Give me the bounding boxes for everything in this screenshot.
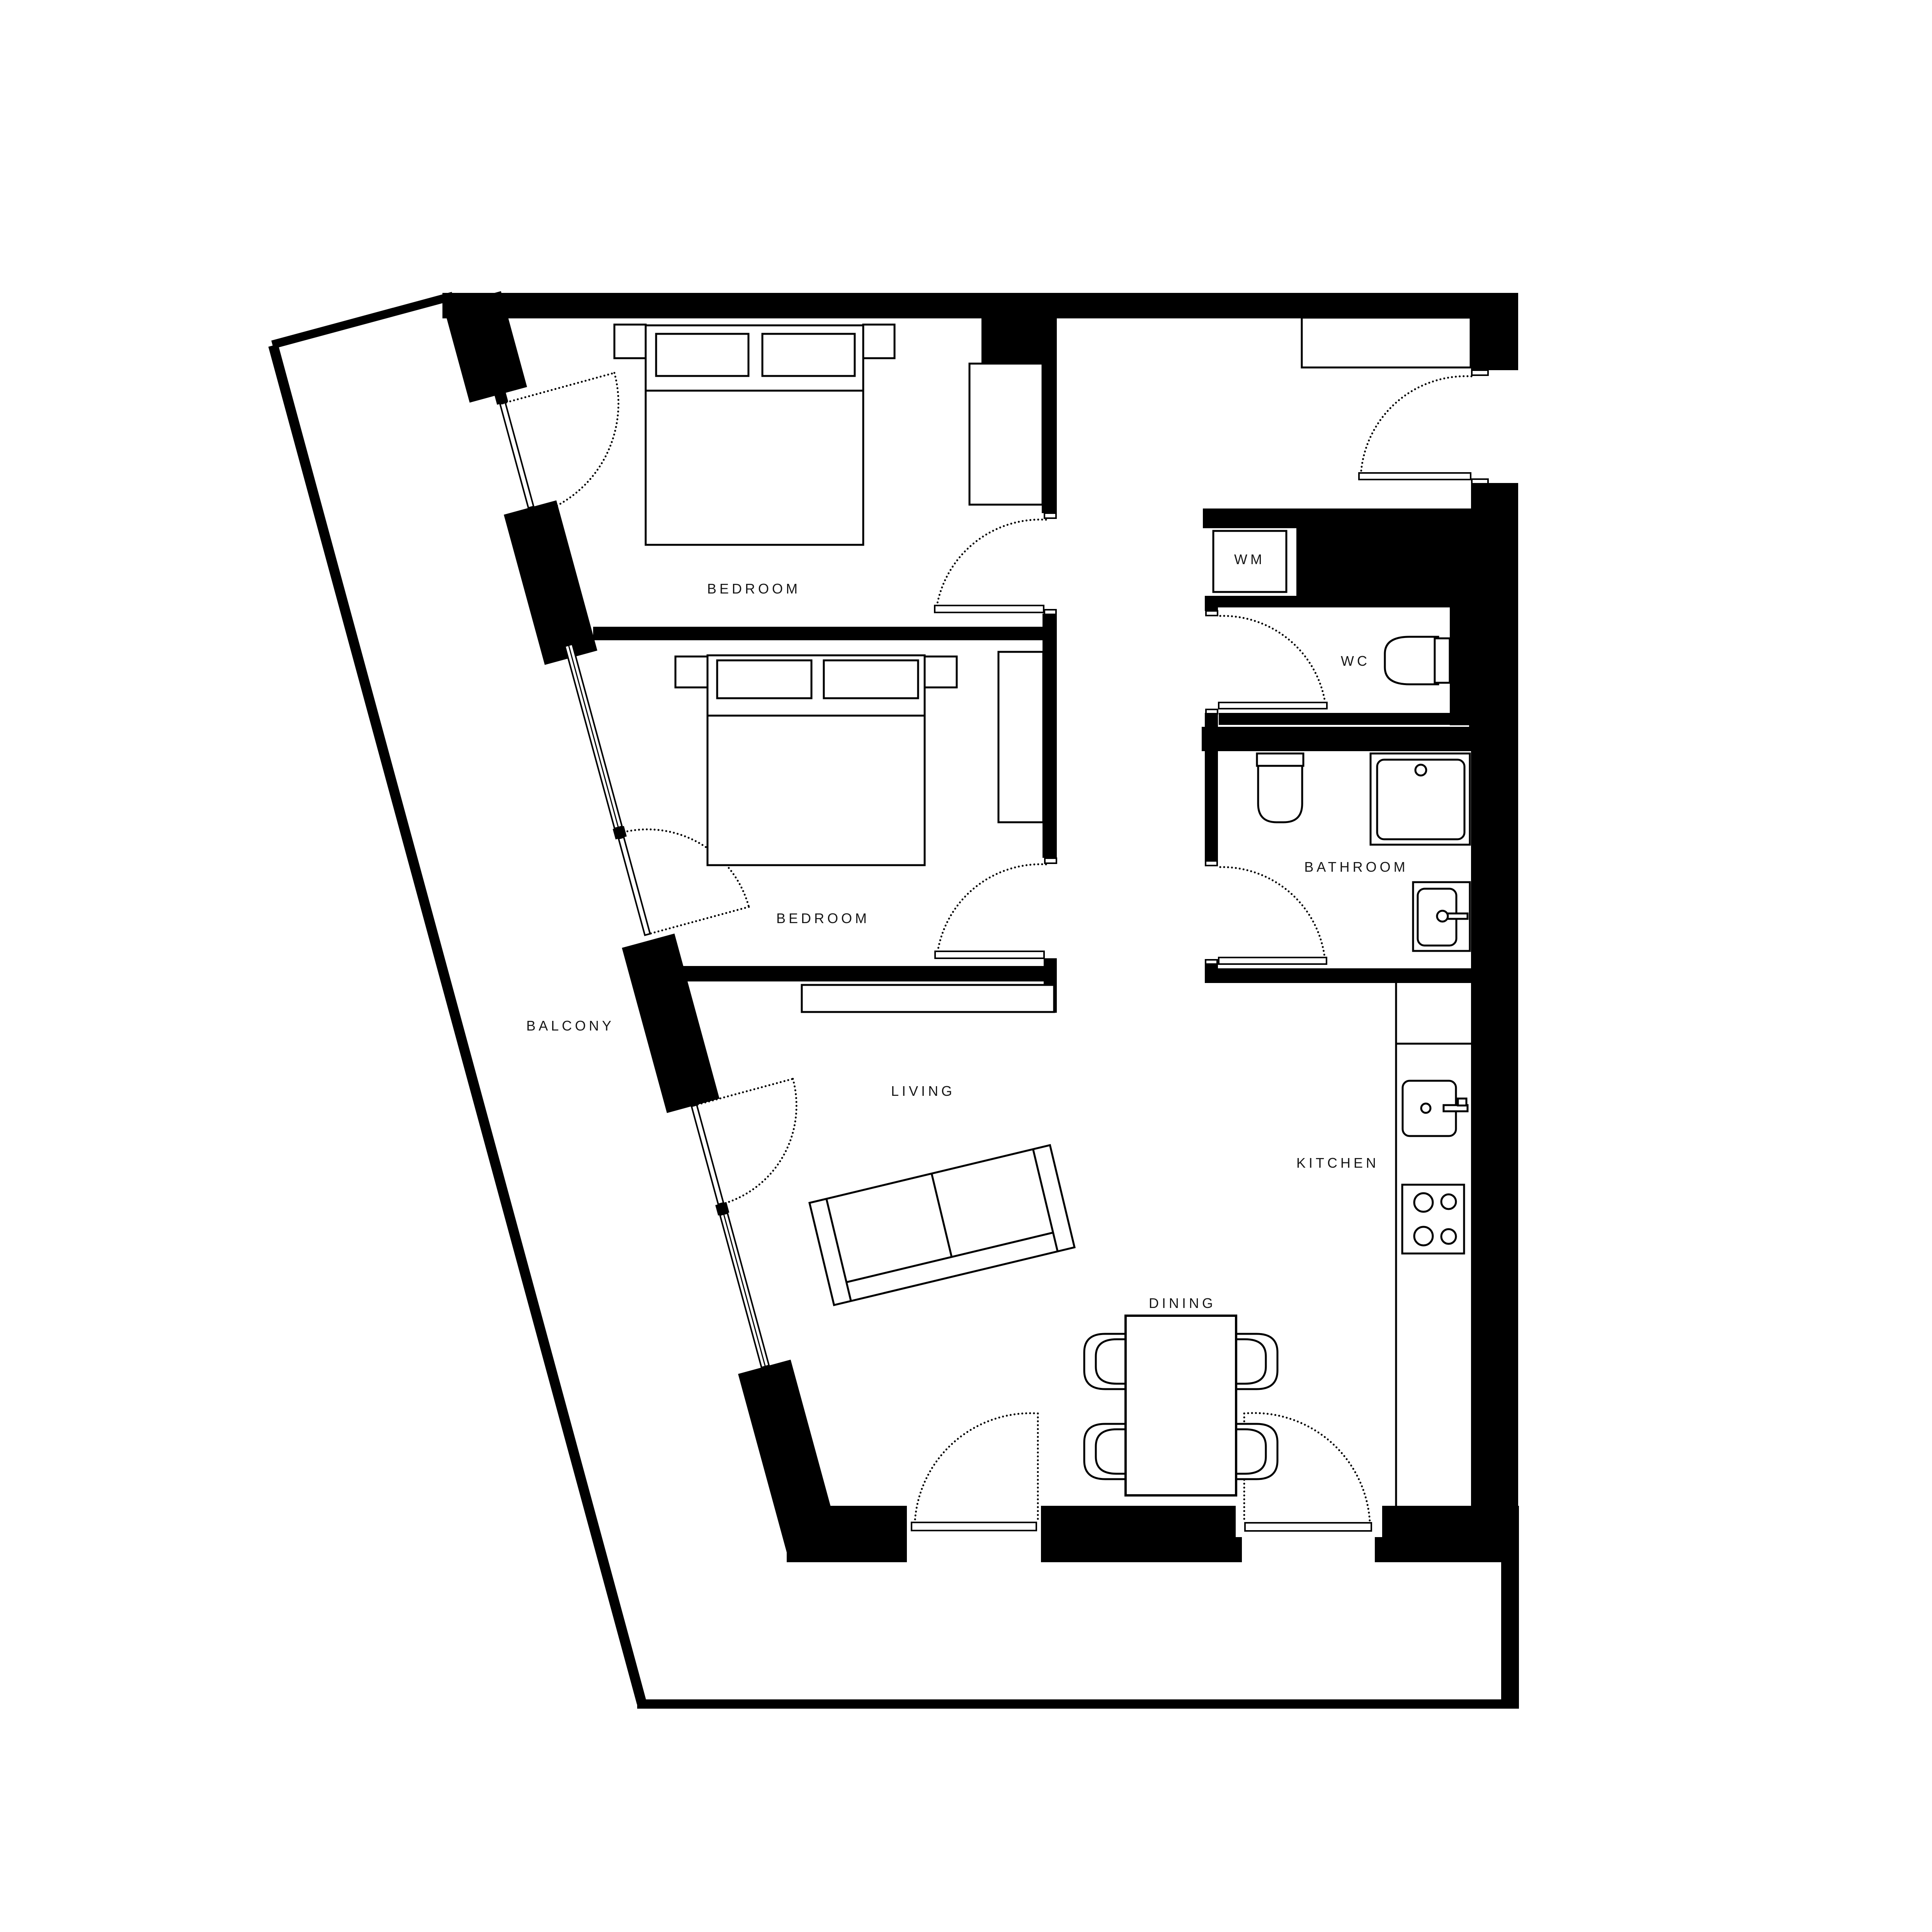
svg-text:BEDROOM: BEDROOM: [707, 581, 801, 597]
svg-text:WC: WC: [1341, 653, 1370, 669]
svg-text:LIVING: LIVING: [891, 1083, 955, 1099]
svg-text:BATHROOM: BATHROOM: [1304, 859, 1408, 875]
svg-text:WM: WM: [1234, 551, 1265, 567]
svg-text:BEDROOM: BEDROOM: [776, 910, 870, 926]
svg-text:BALCONY: BALCONY: [526, 1018, 614, 1034]
svg-text:KITCHEN: KITCHEN: [1296, 1155, 1379, 1171]
svg-text:DINING: DINING: [1149, 1295, 1216, 1311]
